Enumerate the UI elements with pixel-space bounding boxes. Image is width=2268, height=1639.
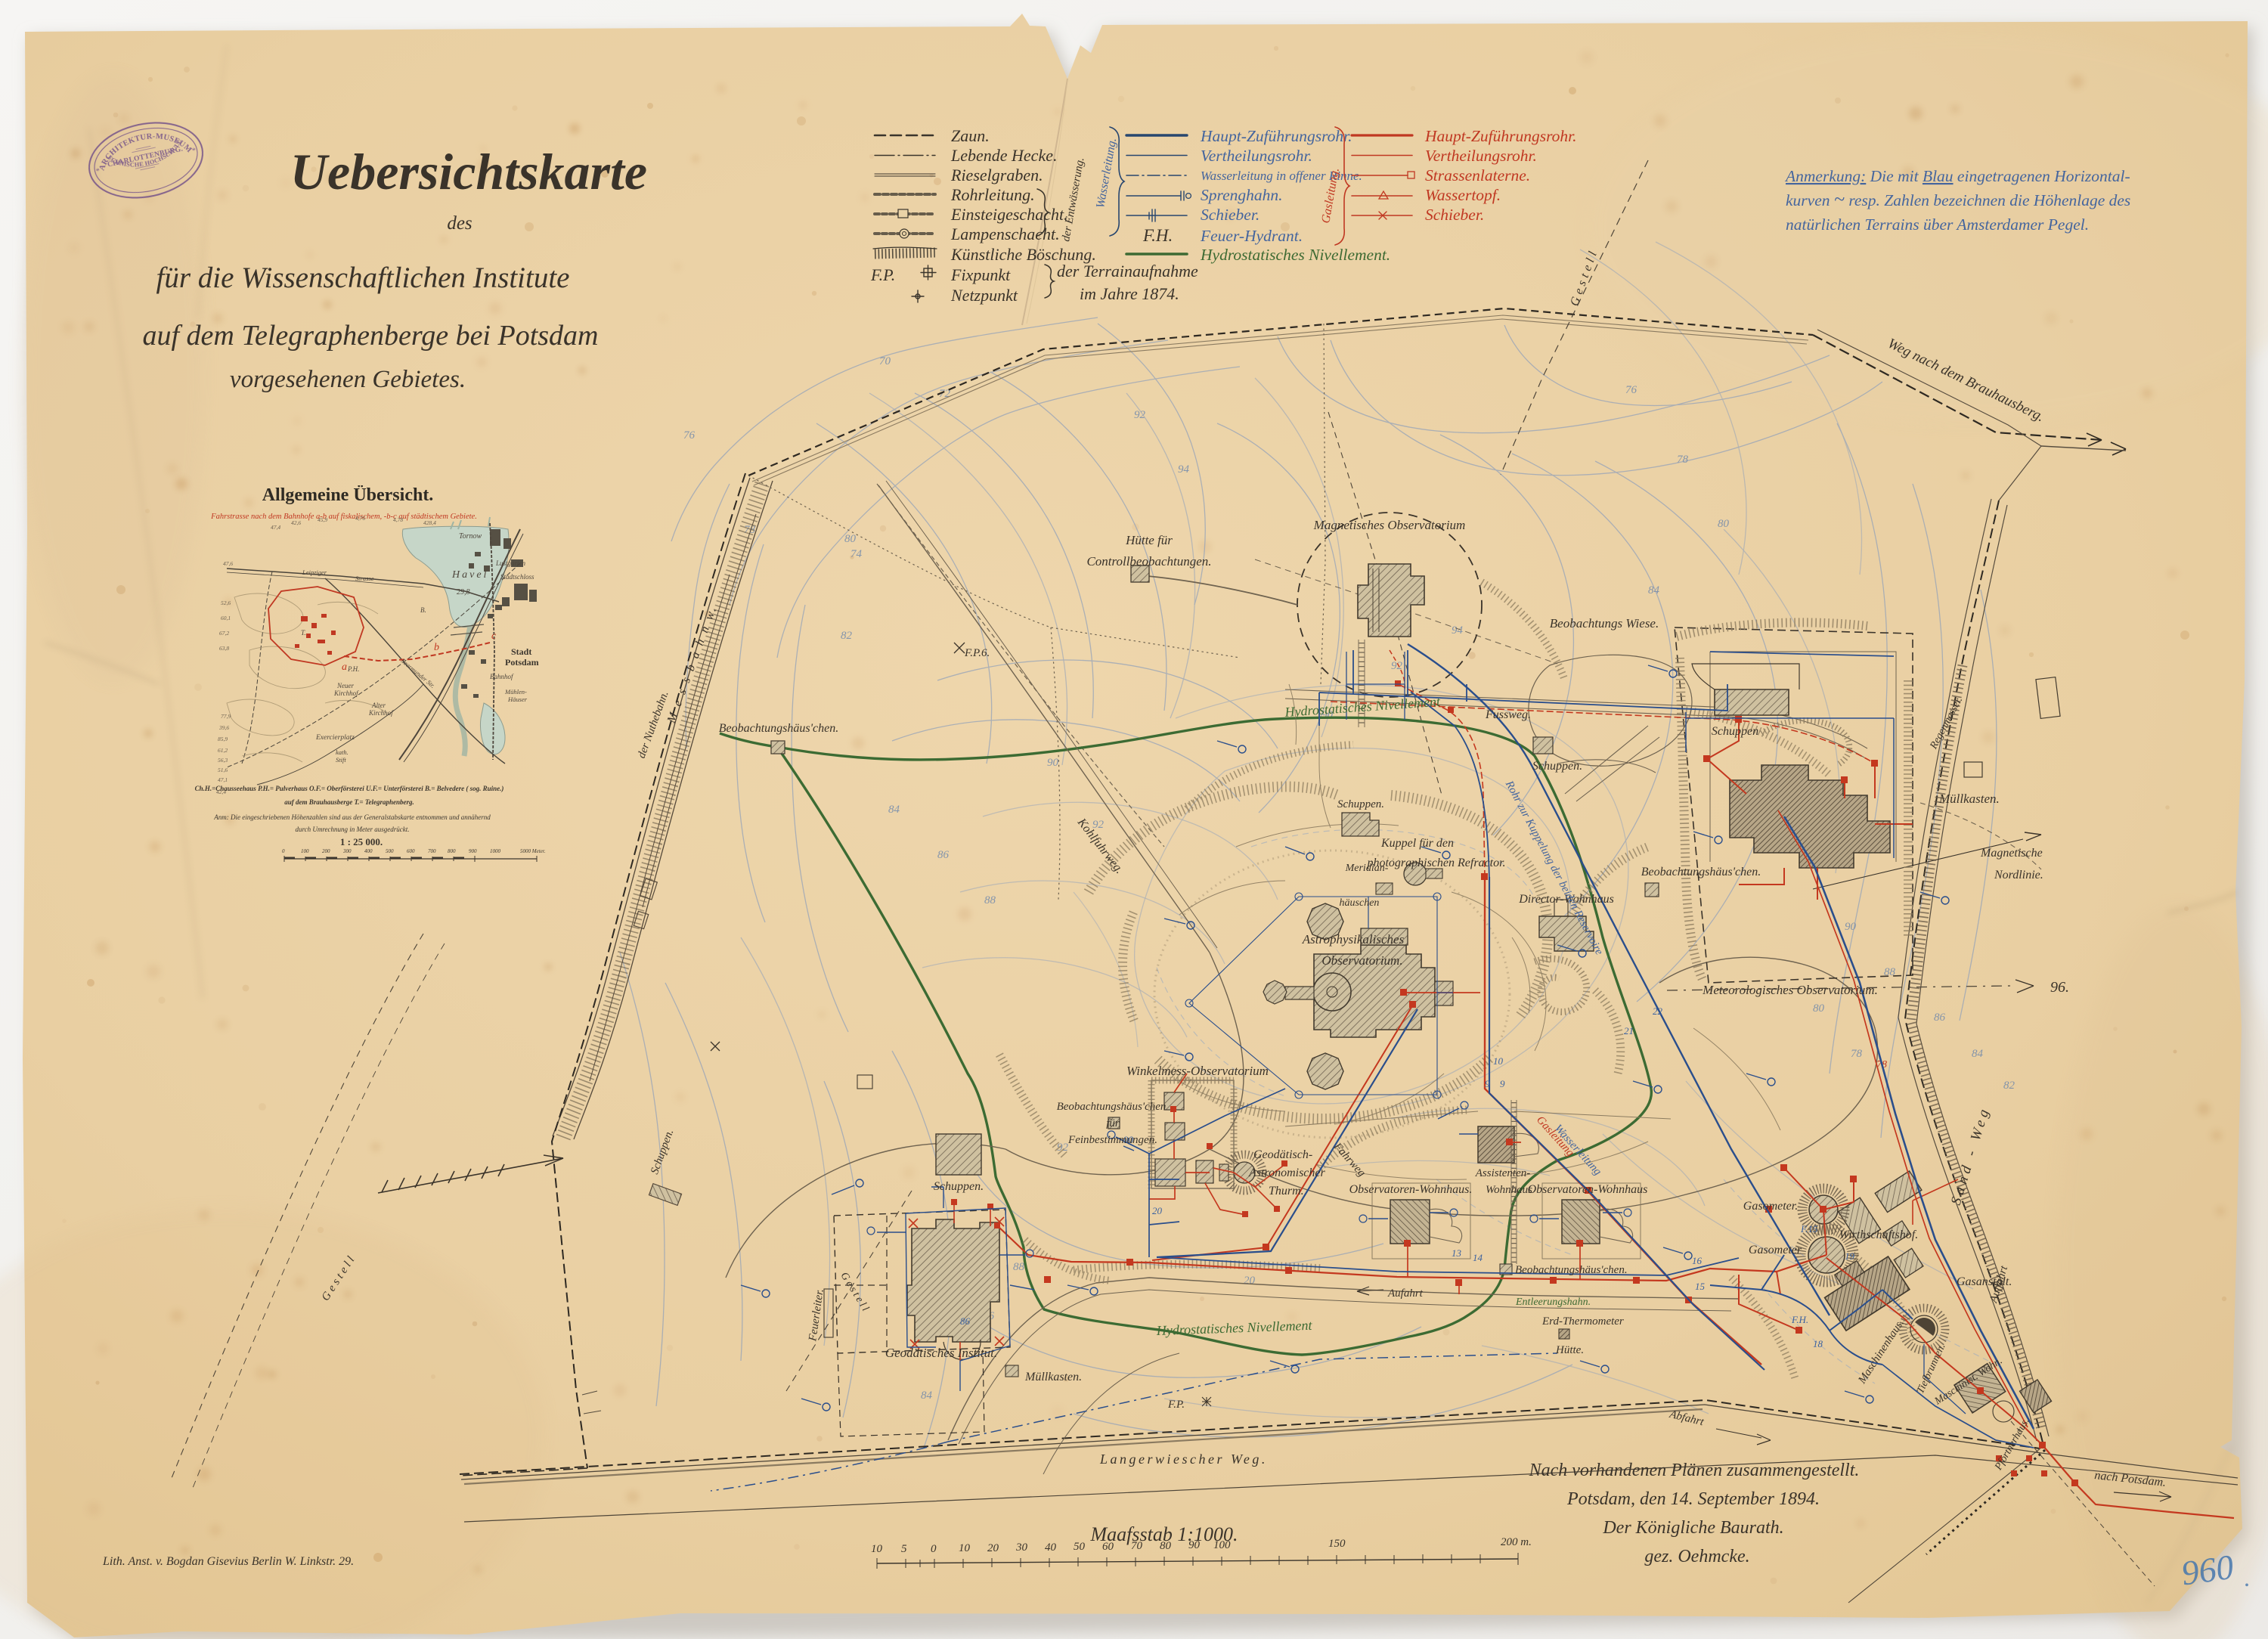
svg-text:Feuer-Hydrant.: Feuer-Hydrant. bbox=[1200, 227, 1303, 245]
svg-text:76: 76 bbox=[683, 429, 696, 442]
svg-text:Beobachtungshäus'chen.: Beobachtungshäus'chen. bbox=[1641, 866, 1761, 878]
svg-text:b: b bbox=[434, 642, 439, 653]
svg-text:16: 16 bbox=[1692, 1255, 1703, 1266]
svg-text:Havel: Havel bbox=[451, 569, 488, 581]
svg-text:96.: 96. bbox=[2050, 979, 2069, 996]
svg-text:natürlichen Terrains über Amst: natürlichen Terrains über Amsterdamer Pe… bbox=[1786, 215, 2089, 234]
svg-text:Langerwiescher Weg.: Langerwiescher Weg. bbox=[1099, 1452, 1268, 1467]
svg-text:4,78: 4,78 bbox=[393, 516, 403, 523]
svg-text:c: c bbox=[491, 631, 497, 642]
svg-text:Rohrleitung.: Rohrleitung. bbox=[950, 185, 1035, 204]
svg-text:90: 90 bbox=[1188, 1539, 1201, 1551]
svg-text:100: 100 bbox=[301, 848, 309, 854]
svg-text:Beobachtungshäus'chen.: Beobachtungshäus'chen. bbox=[719, 722, 839, 735]
svg-text:13: 13 bbox=[1452, 1247, 1462, 1259]
svg-text:Strassenlaterne.: Strassenlaterne. bbox=[1425, 166, 1530, 184]
svg-text:40: 40 bbox=[1045, 1541, 1057, 1554]
svg-text:10: 10 bbox=[871, 1543, 883, 1555]
svg-text:des: des bbox=[447, 213, 472, 234]
svg-text:Wassertopf.: Wassertopf. bbox=[1425, 186, 1501, 204]
svg-text:Schieber.: Schieber. bbox=[1201, 206, 1259, 224]
svg-text:14: 14 bbox=[1473, 1252, 1483, 1263]
svg-text:94: 94 bbox=[1178, 463, 1190, 476]
svg-text:50: 50 bbox=[1074, 1541, 1086, 1553]
svg-text:52,6: 52,6 bbox=[221, 600, 231, 606]
svg-text:Sprenghahn.: Sprenghahn. bbox=[1201, 186, 1283, 204]
svg-text:56,3: 56,3 bbox=[218, 757, 228, 764]
svg-text:88: 88 bbox=[1013, 1261, 1025, 1273]
svg-text:Netzpunkt: Netzpunkt bbox=[950, 286, 1018, 305]
svg-text:82: 82 bbox=[841, 630, 853, 642]
svg-text:Wohnhaus: Wohnhaus bbox=[1486, 1184, 1532, 1196]
svg-text:Zaun.: Zaun. bbox=[951, 126, 990, 145]
svg-text:auf dem Brauhausberge T.= T: auf dem Brauhausberge T.= Telegraphenber… bbox=[284, 798, 414, 806]
svg-text:84: 84 bbox=[1648, 584, 1660, 596]
svg-text:der Terrainaufnahme: der Terrainaufnahme bbox=[1057, 262, 1198, 280]
svg-text:428,4: 428,4 bbox=[423, 519, 436, 526]
svg-text:80: 80 bbox=[1718, 518, 1730, 530]
svg-text:63,8: 63,8 bbox=[219, 645, 229, 652]
svg-text:Rieselgraben.: Rieselgraben. bbox=[950, 166, 1043, 184]
svg-text:1 : 25 000.: 1 : 25 000. bbox=[340, 836, 383, 847]
svg-text:Astrophysikalisches: Astrophysikalisches bbox=[1302, 932, 1405, 947]
svg-text:Meridian-: Meridian- bbox=[1345, 863, 1389, 874]
svg-text:70: 70 bbox=[1131, 1540, 1143, 1552]
svg-text:F.P.6.: F.P.6. bbox=[964, 647, 990, 659]
svg-text:Strasse: Strasse bbox=[355, 575, 374, 582]
svg-text:Hütte für: Hütte für bbox=[1125, 533, 1173, 547]
svg-text:0: 0 bbox=[282, 848, 285, 854]
svg-text:F.H.: F.H. bbox=[1142, 226, 1173, 245]
svg-text:Geodätisches Institut.: Geodätisches Institut. bbox=[885, 1346, 997, 1360]
svg-text:Leipziger: Leipziger bbox=[302, 569, 327, 576]
svg-text:9: 9 bbox=[1500, 1078, 1505, 1089]
svg-text:100: 100 bbox=[1213, 1539, 1231, 1551]
svg-text:Uebersichtskarte: Uebersichtskarte bbox=[290, 143, 647, 200]
svg-text:Vertheilungsrohr.: Vertheilungsrohr. bbox=[1201, 147, 1312, 165]
svg-text:Winkelmess-Observatorium: Winkelmess-Observatorium bbox=[1126, 1064, 1269, 1078]
svg-text:Astronomischer: Astronomischer bbox=[1248, 1167, 1326, 1179]
svg-text:Potsdam, den 14. September 189: Potsdam, den 14. September 1894. bbox=[1566, 1489, 1820, 1509]
svg-text:Lith. Anst. v. Bogdan Gisevius: Lith. Anst. v. Bogdan Gisevius Berlin W.… bbox=[102, 1555, 354, 1568]
svg-text:18: 18 bbox=[1813, 1338, 1823, 1349]
svg-text:86: 86 bbox=[937, 849, 950, 861]
svg-text:Schuppen.: Schuppen. bbox=[1337, 798, 1384, 810]
svg-text:Aufahrt: Aufahrt bbox=[1387, 1287, 1424, 1300]
svg-text:42,6: 42,6 bbox=[291, 519, 301, 526]
svg-text:400: 400 bbox=[364, 848, 373, 854]
svg-text:94: 94 bbox=[1452, 624, 1464, 637]
svg-text:22: 22 bbox=[1653, 1005, 1663, 1017]
svg-text:Potsdam: Potsdam bbox=[505, 657, 539, 668]
svg-text:Fixpunkt: Fixpunkt bbox=[950, 265, 1011, 284]
svg-text:74: 74 bbox=[850, 548, 863, 560]
svg-text:10: 10 bbox=[959, 1542, 971, 1554]
svg-text:Stadt: Stadt bbox=[511, 646, 531, 657]
svg-text:Allgemeine Übersicht.: Allgemeine Übersicht. bbox=[262, 485, 434, 505]
svg-text:für die Wissenschaftlichen Ins: für die Wissenschaftlichen Institute bbox=[156, 262, 569, 294]
svg-text:Schuppen.: Schuppen. bbox=[1532, 760, 1582, 773]
svg-text:T.: T. bbox=[301, 629, 306, 637]
svg-text:1000: 1000 bbox=[490, 848, 501, 854]
svg-text:Müllkasten.: Müllkasten. bbox=[1024, 1371, 1082, 1383]
svg-text:15: 15 bbox=[1695, 1281, 1706, 1292]
svg-text:Exercierplatz: Exercierplatz bbox=[315, 734, 355, 742]
svg-text:Tornow: Tornow bbox=[459, 532, 482, 541]
svg-text:Neuer: Neuer bbox=[336, 682, 354, 689]
svg-text:19: 19 bbox=[1845, 1250, 1855, 1262]
svg-text:47,1: 47,1 bbox=[218, 776, 228, 783]
svg-text:Kirchhof: Kirchhof bbox=[368, 709, 394, 717]
svg-text:960: 960 bbox=[2179, 1548, 2235, 1593]
svg-text:a: a bbox=[342, 661, 347, 673]
svg-text:80: 80 bbox=[844, 533, 857, 545]
svg-text:P.H.: P.H. bbox=[347, 665, 359, 673]
svg-text:F.15: F.15 bbox=[1800, 1223, 1818, 1235]
svg-text:84: 84 bbox=[921, 1390, 933, 1402]
svg-text:39,6: 39,6 bbox=[218, 724, 229, 731]
svg-text:84: 84 bbox=[1972, 1048, 1984, 1060]
svg-text:Schuppen: Schuppen bbox=[1712, 725, 1758, 738]
svg-text:Thurm.: Thurm. bbox=[1269, 1185, 1304, 1197]
svg-text:60,1: 60,1 bbox=[221, 615, 231, 621]
svg-text:300: 300 bbox=[342, 848, 352, 854]
svg-text:86: 86 bbox=[960, 1315, 971, 1327]
svg-text:im Jahre 1874.: im Jahre 1874. bbox=[1080, 284, 1179, 303]
svg-text:Nach vorhandenen Plänen zusamm: Nach vorhandenen Plänen zusammengestellt… bbox=[1529, 1461, 1860, 1480]
svg-text:Ch.H.=Chausseehaus P.H.= Pul: Ch.H.=Chausseehaus P.H.= Pulverhaus O.F.… bbox=[195, 785, 504, 792]
svg-text:Gasometer: Gasometer bbox=[1749, 1244, 1802, 1256]
svg-text:70: 70 bbox=[879, 355, 891, 367]
svg-text:häuschen: häuschen bbox=[1340, 897, 1380, 909]
svg-text:Lampenschacht.: Lampenschacht. bbox=[950, 225, 1060, 243]
svg-text:61,2: 61,2 bbox=[218, 747, 228, 754]
svg-text:30: 30 bbox=[1015, 1541, 1028, 1554]
svg-text:Vertheilungsrohr.: Vertheilungsrohr. bbox=[1425, 147, 1537, 165]
svg-text:Gasometer.: Gasometer. bbox=[1743, 1200, 1798, 1213]
svg-text:76: 76 bbox=[1625, 384, 1637, 396]
svg-text:Meteorologisches Observatorium: Meteorologisches Observatorium. bbox=[1702, 983, 1878, 997]
svg-text:F.P.: F.P. bbox=[1167, 1399, 1185, 1411]
svg-text:Fahrstrasse nach dem Bahnhofe: Fahrstrasse nach dem Bahnhofe a-b auf fi… bbox=[210, 513, 477, 521]
svg-text:78: 78 bbox=[1677, 454, 1689, 466]
svg-text:Anmerkung: Die mit Blau einget: Anmerkung: Die mit Blau eingetragenen Ho… bbox=[1784, 167, 2130, 185]
svg-text:20: 20 bbox=[1244, 1275, 1256, 1287]
svg-text:Geodätisch-: Geodätisch- bbox=[1253, 1148, 1312, 1161]
svg-text:900: 900 bbox=[469, 848, 477, 854]
svg-text:Entleerungshahn.: Entleerungshahn. bbox=[1515, 1297, 1591, 1308]
svg-text:vorgesehenen Gebietes.: vorgesehenen Gebietes. bbox=[230, 366, 466, 393]
svg-text:Lustgarten: Lustgarten bbox=[495, 559, 526, 567]
svg-text:Schieber.: Schieber. bbox=[1425, 206, 1484, 224]
svg-text:78: 78 bbox=[1851, 1048, 1863, 1060]
svg-text:Lebende Hecke.: Lebende Hecke. bbox=[950, 146, 1057, 165]
svg-text:gez. Oehmcke.: gez. Oehmcke. bbox=[1644, 1547, 1749, 1566]
svg-text:Observatoren-Wohnhaus.: Observatoren-Wohnhaus. bbox=[1349, 1183, 1473, 1196]
svg-text:92: 92 bbox=[1134, 409, 1146, 421]
svg-text:45,9: 45,9 bbox=[318, 516, 327, 523]
svg-text:500: 500 bbox=[386, 848, 394, 854]
svg-text:600: 600 bbox=[407, 848, 415, 854]
svg-text:85,9: 85,9 bbox=[218, 736, 228, 742]
svg-text:auf dem Telegraphenberge bei P: auf dem Telegraphenberge bei Potsdam bbox=[143, 320, 599, 352]
svg-text:82: 82 bbox=[2003, 1080, 2015, 1092]
svg-text:Bahnhof: Bahnhof bbox=[490, 673, 514, 680]
svg-text:Observatoren-Wohnhaus: Observatoren-Wohnhaus bbox=[1528, 1183, 1648, 1196]
svg-text:150: 150 bbox=[1328, 1538, 1346, 1550]
svg-text:20: 20 bbox=[1152, 1205, 1163, 1216]
svg-text:51,6: 51,6 bbox=[218, 767, 228, 773]
svg-text:10: 10 bbox=[1493, 1055, 1504, 1067]
svg-text:80: 80 bbox=[1813, 1002, 1825, 1015]
svg-text:20: 20 bbox=[987, 1542, 999, 1554]
svg-text:für: für bbox=[1106, 1117, 1120, 1129]
svg-text:Controllbeobachtungen.: Controllbeobachtungen. bbox=[1086, 554, 1211, 569]
svg-text:Alter: Alter bbox=[371, 702, 386, 709]
svg-text:kath.: kath. bbox=[336, 748, 349, 756]
svg-text:Anm: Die eingeschriebenen: Anm: Die eingeschriebenen Höhenzahlen si… bbox=[213, 813, 491, 821]
svg-text:Beobachtungshäus'chen: Beobachtungshäus'chen bbox=[1057, 1101, 1167, 1113]
svg-text:4,76: 4,76 bbox=[355, 515, 365, 522]
svg-text:88: 88 bbox=[984, 894, 996, 906]
svg-text:Mühlen-: Mühlen- bbox=[504, 688, 527, 696]
svg-text:800: 800 bbox=[448, 848, 456, 854]
svg-text:Assistenten-: Assistenten- bbox=[1475, 1167, 1531, 1179]
svg-text:5: 5 bbox=[901, 1543, 907, 1555]
svg-text:60: 60 bbox=[1102, 1541, 1114, 1553]
svg-text:90: 90 bbox=[1845, 921, 1857, 933]
svg-text:Magnetisches Observatorium: Magnetisches Observatorium bbox=[1313, 518, 1466, 532]
svg-text:.: . bbox=[2244, 1564, 2250, 1591]
svg-text:Haupt-Zuführungsrohr.: Haupt-Zuführungsrohr. bbox=[1424, 127, 1577, 145]
svg-text:Der Königliche Baurath.: Der Königliche Baurath. bbox=[1602, 1518, 1783, 1538]
svg-text:durch Umrechnung in Meter: durch Umrechnung in Meter ausgedrückt. bbox=[295, 826, 409, 833]
svg-text:Beobachtungshäus'chen.: Beobachtungshäus'chen. bbox=[1515, 1264, 1628, 1276]
svg-text:B.: B. bbox=[420, 606, 426, 614]
svg-text:200: 200 bbox=[322, 848, 330, 854]
svg-text:90: 90 bbox=[1047, 757, 1059, 769]
svg-text:Erd-Thermometer: Erd-Thermometer bbox=[1541, 1315, 1624, 1328]
svg-text:86: 86 bbox=[1934, 1012, 1946, 1024]
svg-text:F.H.: F.H. bbox=[1791, 1314, 1808, 1325]
svg-text:77,9: 77,9 bbox=[221, 713, 231, 720]
svg-text:47,6: 47,6 bbox=[223, 560, 233, 567]
svg-text:29,8: 29,8 bbox=[457, 588, 470, 596]
svg-text:21: 21 bbox=[1624, 1025, 1634, 1036]
svg-text:Haupt-Zuführungsrohr.: Haupt-Zuführungsrohr. bbox=[1200, 127, 1352, 145]
svg-text:47,4: 47,4 bbox=[271, 524, 280, 531]
svg-text:Nordlinie.: Nordlinie. bbox=[1994, 869, 2043, 881]
svg-text:Einsteigeschacht.: Einsteigeschacht. bbox=[950, 205, 1068, 224]
svg-text:Müllkasten.: Müllkasten. bbox=[1938, 792, 2000, 806]
svg-text:0: 0 bbox=[931, 1543, 937, 1555]
svg-text:67,2: 67,2 bbox=[219, 630, 229, 637]
svg-text:Feinbestimmungen.: Feinbestimmungen. bbox=[1067, 1134, 1157, 1146]
svg-text:Stadtschloss: Stadtschloss bbox=[500, 573, 534, 581]
svg-text:Schuppen.: Schuppen. bbox=[934, 1180, 984, 1193]
svg-text:5000 Meter.: 5000 Meter. bbox=[520, 848, 546, 854]
svg-text:Kuppel für den: Kuppel für den bbox=[1380, 837, 1454, 850]
svg-text:Fussweg.: Fussweg. bbox=[1485, 708, 1531, 721]
svg-text:Wirthschaftshof.: Wirthschaftshof. bbox=[1839, 1228, 1918, 1241]
svg-text:9: 9 bbox=[1485, 1078, 1490, 1089]
svg-text:Beobachtungs Wiese.: Beobachtungs Wiese. bbox=[1550, 616, 1659, 631]
svg-text:Hydrostatisches Nivellement.: Hydrostatisches Nivellement. bbox=[1200, 246, 1390, 264]
svg-text:F.P.: F.P. bbox=[870, 265, 895, 284]
svg-text:Stift: Stift bbox=[336, 756, 346, 764]
svg-text:Magnetische: Magnetische bbox=[1980, 847, 2043, 860]
svg-text:kurven ~ resp. Zahlen bezeich: kurven ~ resp. Zahlen bezeichnen die Höh… bbox=[1786, 188, 2130, 210]
svg-text:Kirchhof: Kirchhof bbox=[333, 689, 359, 697]
svg-text:700: 700 bbox=[428, 848, 436, 854]
svg-text:Häuser: Häuser bbox=[507, 696, 528, 703]
svg-text:Hütte.: Hütte. bbox=[1555, 1344, 1584, 1356]
svg-text:200 m.: 200 m. bbox=[1501, 1536, 1532, 1548]
svg-text:84: 84 bbox=[888, 804, 900, 816]
svg-text:80: 80 bbox=[1160, 1540, 1172, 1552]
svg-text:Observatorium.: Observatorium. bbox=[1321, 953, 1402, 968]
